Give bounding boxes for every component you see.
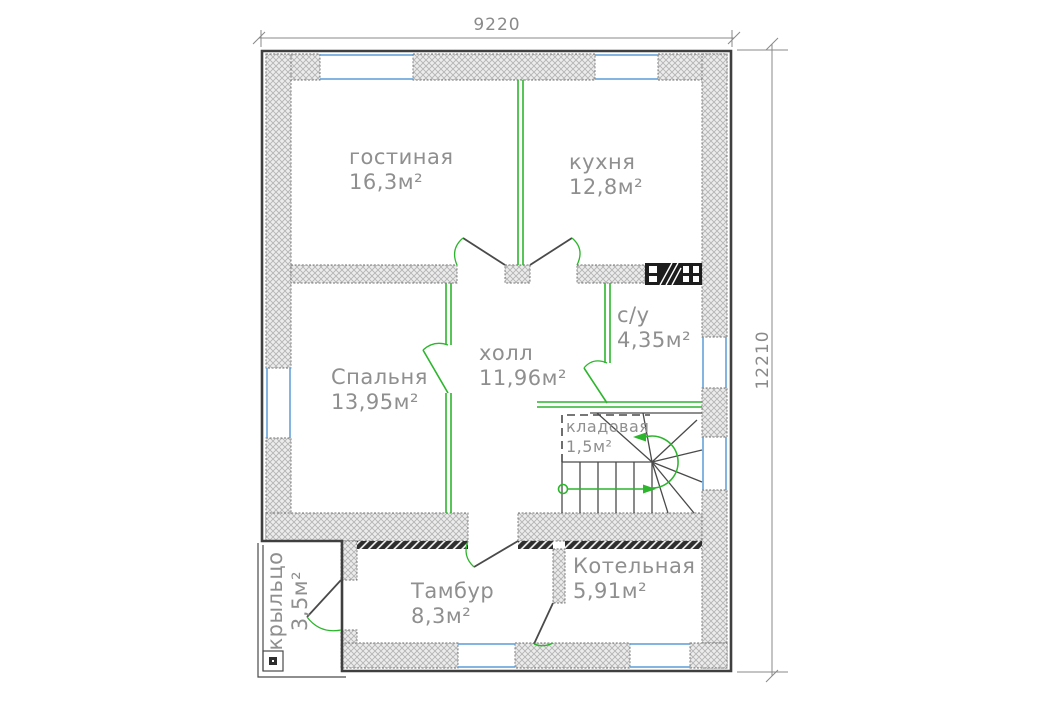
room-label-bathroom: с/у 4,35м² [617,303,691,353]
room-area: 13,95м² [331,390,428,415]
room-label-kitchen: кухня 12,8м² [569,150,643,200]
door-leaf-boiler [534,603,553,644]
room-name: Тамбур [411,579,494,604]
room-name: кладовая [566,417,649,437]
door-arc-vestibule [466,541,474,567]
room-label-bedroom: Спальня 13,95м² [331,365,428,415]
room-area: 8,3м² [411,604,494,629]
room-label-vestibule: Тамбур 8,3м² [411,579,494,629]
room-name: холл [479,341,567,366]
entry-column [269,657,277,665]
door-arc-kitchen [572,238,580,265]
room-area: 5,91м² [573,579,695,604]
room-area: 3,5м² [288,546,313,656]
door-arc-living [455,238,463,265]
room-label-boiler: Котельная 5,91м² [573,554,695,604]
dimension-width-label: 9220 [460,15,534,35]
dimension-height-label: 12210 [753,310,773,410]
insulation-strips [357,541,702,549]
door-arc-bathroom [584,361,607,368]
room-area: 16,3м² [349,170,454,195]
room-label-porch: крыльцо 3,5м² [263,546,309,656]
door-arc-bedroom [423,343,448,350]
room-name: кухня [569,150,643,175]
room-area: 11,96м² [479,366,567,391]
room-area: 4,35м² [617,328,691,353]
room-name: Котельная [573,554,695,579]
room-area: 12,8м² [569,175,643,200]
room-name: Спальня [331,365,428,390]
vent-shaft [645,263,702,285]
door-leaf-living [463,238,505,265]
floor-plan-canvas: гостиная 16,3м² кухня 12,8м² с/у 4,35м² … [0,0,1044,720]
door-leaf-vestibule [474,541,518,567]
room-label-hall: холл 11,96м² [479,341,567,391]
door-leaf-kitchen [530,238,572,265]
room-name: крыльцо [263,546,288,656]
room-label-living: гостиная 16,3м² [349,145,454,195]
room-label-storage: кладовая 1,5м² [566,417,649,457]
room-area: 1,5м² [566,437,649,457]
room-name: гостиная [349,145,454,170]
door-leaf-bathroom [584,368,607,403]
room-name: с/у [617,303,691,328]
